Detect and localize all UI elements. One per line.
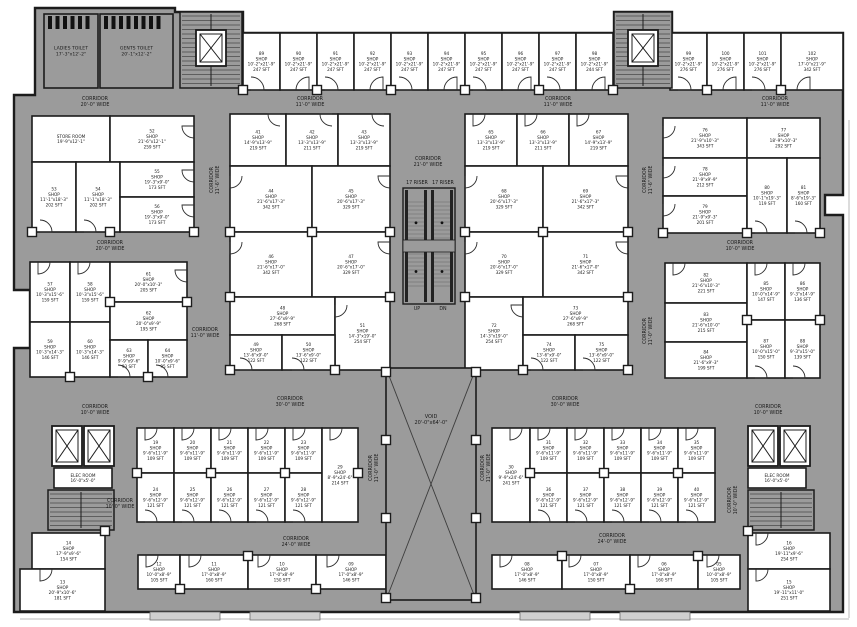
column <box>226 228 235 237</box>
room-97: 97SHOP10'-2"x21'-9"247 SFT <box>539 33 576 90</box>
room-31: 31SHOP9'-6"x11'-9"109 SFT <box>530 428 567 473</box>
corridor-label: CORRIDOR10'-0" WIDE <box>81 404 110 416</box>
room-75: 75SHOP13'-6"x9'-0"122 SFT <box>575 335 628 370</box>
room-86: 86SHOP9'-3"x14'-9"136 SFT <box>785 263 820 320</box>
room-79: 79SHOP21'-9"x9'-3"201 SFT <box>663 196 747 233</box>
room-77: 77SHOP18'-9"x10'-3"292 SFT <box>747 118 820 158</box>
lift <box>748 426 778 466</box>
room-35: 35SHOP9'-6"x11'-9"109 SFT <box>678 428 715 473</box>
column <box>144 373 153 382</box>
corridor-label: DN <box>439 306 447 312</box>
room-label: STORE ROOM19'-9"x12'-1" <box>57 134 86 144</box>
room-95: 95SHOP10'-2"x21'-9"247 SFT <box>465 33 502 90</box>
room-89: 89SHOP10'-2"x21'-9"247 SFT <box>243 33 280 90</box>
column <box>816 316 825 325</box>
room-69: 69SHOP21'-6"x17'-3"342 SFT <box>543 166 628 232</box>
room-15: 15SHOP19'-11"x11'-0"251 SFT <box>748 569 830 611</box>
column <box>777 86 786 95</box>
room-44: 44SHOP21'-6"x17'-3"342 SFT <box>230 166 312 232</box>
escalator <box>403 188 455 304</box>
room-label: ELEC ROOM16'-0"x5'-0" <box>765 473 790 483</box>
column <box>207 469 216 478</box>
room-73: 73SHOP27'-6"x9'-9"268 SFT <box>523 297 628 335</box>
floor-plan-page: LADIES TOILET17'-3"x12'-2"GENTS TOILET20… <box>0 0 857 627</box>
column <box>382 436 391 445</box>
room-28: 28SHOP9'-6"x12'-9"121 SFT <box>285 473 322 522</box>
room-94: 94SHOP10'-2"x21'-9"247 SFT <box>428 33 465 90</box>
room-25: 25SHOP9'-6"x12'-9"121 SFT <box>174 473 211 522</box>
corridor-label: CORRIDOR30'-0" WIDE <box>276 396 305 408</box>
room-37: 37SHOP9'-6"x12'-9"121 SFT <box>567 473 604 522</box>
corridor-label: CORRIDOR20'-0" WIDE <box>81 96 110 108</box>
room-80: 80SHOP10'-1"x19'-3"119 SFT <box>747 158 787 233</box>
corridor-label: CORRIDOR11'-0" WIDE <box>296 96 325 108</box>
entry-step <box>250 612 320 620</box>
room-74: 74SHOP13'-6"x9'-0"122 SFT <box>523 335 575 370</box>
room-68: 68SHOP20'-6"x17'-3"329 SFT <box>465 166 543 232</box>
entry-step <box>620 612 690 620</box>
room-91: 91SHOP10'-2"x21'-9"247 SFT <box>317 33 354 90</box>
lift <box>84 426 114 466</box>
room-36: 36SHOP9'-6"x12'-9"121 SFT <box>530 473 567 522</box>
corridor-label: CORRIDOR11'-0" WIDE <box>368 454 380 483</box>
column <box>354 469 363 478</box>
column <box>694 552 703 561</box>
column <box>600 469 609 478</box>
column <box>472 368 481 377</box>
column <box>386 228 395 237</box>
room-label: ELEC ROOM16'-0"x5'-0" <box>71 473 96 483</box>
void: VOID20'-0"x64'-0" <box>386 368 476 600</box>
column <box>526 469 535 478</box>
room-32: 32SHOP9'-6"x11'-9"109 SFT <box>567 428 604 473</box>
corridor-label: CORRIDOR10'-0" WIDE <box>726 240 755 252</box>
room-76: 76SHOP21'-9"x10'-3"343 SFT <box>663 118 747 158</box>
corridor-label: CORRIDOR10'-0" WIDE <box>106 498 135 510</box>
room-42: 42SHOP13'-3"x13'-9"211 SFT <box>286 114 338 166</box>
room-93: 93SHOP10'-2"x21'-9"247 SFT <box>391 33 428 90</box>
room-59: 59SHOP10'-3"x14'-3"146 SFT <box>30 322 70 377</box>
room-50: 50SHOP13'-6"x9'-0"122 SFT <box>282 335 335 370</box>
floor-plan-canvas: LADIES TOILET17'-3"x12'-2"GENTS TOILET20… <box>0 0 857 627</box>
column <box>624 228 633 237</box>
room-34: 34SHOP9'-6"x11'-9"109 SFT <box>641 428 678 473</box>
corridor-label: CORRIDOR11'-6" WIDE <box>209 166 221 195</box>
column <box>703 86 712 95</box>
room-71: 71SHOP21'-6"x17'-0"342 SFT <box>543 232 628 297</box>
column <box>626 585 635 594</box>
room-84: 84SHOP21'-6"x9'-3"199 SFT <box>665 342 747 378</box>
column <box>472 594 481 603</box>
lift <box>52 426 82 466</box>
room-81: 81SHOP8'-6"x19'-3"160 SFT <box>787 158 820 233</box>
room-64: 64SHOP10'-0"x9'-6"95 SFT <box>148 340 187 377</box>
room-33: 33SHOP9'-6"x11'-9"109 SFT <box>604 428 641 473</box>
room-83: 83SHOP21'-6"x10'-0"215 SFT <box>665 303 747 342</box>
room-52: 52SHOP21'-6"x12'-1"259 SFT <box>110 116 194 162</box>
room-82: 82SHOP21'-6"x10'-3"221 SFT <box>665 263 747 303</box>
column <box>66 373 75 382</box>
column <box>226 293 235 302</box>
room-store-room: STORE ROOM19'-9"x12'-1" <box>32 116 110 162</box>
room-elec-room: ELEC ROOM16'-0"x5'-0" <box>54 468 112 488</box>
room-48: 48SHOP27'-6"x9'-9"268 SFT <box>230 297 335 335</box>
corridor-label: UP <box>414 306 421 312</box>
column <box>624 366 633 375</box>
column <box>226 366 235 375</box>
room-label: GENTS TOILET20'-1"x12'-2" <box>120 46 153 58</box>
corridor-label: CORRIDOR11'-0" WIDE <box>761 96 790 108</box>
column <box>743 316 752 325</box>
column <box>244 552 253 561</box>
room-06: 06SHOP17'-0"x8'-9"160 SFT <box>630 555 698 589</box>
room-58: 58SHOP10'-3"x15'-6"159 SFT <box>70 262 110 322</box>
room-14: 14SHOP17'-9"x9'-6"154 SFT <box>32 533 105 569</box>
staircase <box>48 490 114 530</box>
column <box>28 228 37 237</box>
corridor-label: CORRIDOR10'-0" WIDE <box>727 486 739 515</box>
room-101: 101SHOP10'-2"x21'-9"276 SFT <box>744 33 781 90</box>
corridor-label: CORRIDOR11'-0" WIDE <box>191 327 220 339</box>
room-29: 29SHOP8'-9"x24'-6"214 SFT <box>322 428 358 522</box>
room-label: LADIES TOILET17'-3"x12'-2" <box>54 46 88 58</box>
room-46: 46SHOP21'-6"x17'-0"342 SFT <box>230 232 312 297</box>
room-12: 12SHOP10'-0"x8'-9"105 SFT <box>138 555 180 589</box>
column <box>133 469 142 478</box>
lift <box>628 30 658 66</box>
column <box>558 552 567 561</box>
lift <box>196 30 226 66</box>
column <box>461 228 470 237</box>
room-19: 19SHOP9'-6"x11'-9"109 SFT <box>137 428 174 473</box>
corridor-label: CORRIDOR11'-0" WIDE <box>642 317 654 346</box>
column <box>176 585 185 594</box>
column <box>674 469 683 478</box>
entry-step <box>150 612 220 620</box>
entry-step <box>520 612 590 620</box>
room-98: 98SHOP10'-2"x21'-9"244 SFT <box>576 33 613 90</box>
staircase <box>748 490 814 530</box>
column <box>106 298 115 307</box>
column <box>387 86 396 95</box>
room-88: 88SHOP9'-3"x15'-0"139 SFT <box>785 320 820 378</box>
room-41: 41SHOP14'-9"x13'-9"219 SFT <box>230 114 286 166</box>
column <box>609 86 618 95</box>
room-53: 53SHOP11'-1"x18'-3"202 SFT <box>32 162 76 232</box>
room-99: 99SHOP10'-2"x21'-9"276 SFT <box>670 33 707 90</box>
corridor-label: CORRIDOR11'-6" WIDE <box>642 166 654 195</box>
room-26: 26SHOP9'-6"x12'-9"121 SFT <box>211 473 248 522</box>
room-96: 96SHOP10'-2"x21'-9"247 SFT <box>502 33 539 90</box>
room-27: 27SHOP9'-6"x12'-9"121 SFT <box>248 473 285 522</box>
room-23: 23SHOP9'-6"x11'-9"109 SFT <box>285 428 322 473</box>
room-57: 57SHOP10'-3"x15'-6"159 SFT <box>30 262 70 322</box>
room-56: 56SHOP19'-3"x9'-0"173 SFT <box>120 197 194 232</box>
room-60: 60SHOP10'-3"x14'-3"146 SFT <box>70 322 110 377</box>
column <box>472 514 481 523</box>
room-11: 11SHOP17'-0"x8'-9"160 SFT <box>180 555 248 589</box>
column <box>535 86 544 95</box>
column <box>281 469 290 478</box>
room-55: 55SHOP19'-3"x9'-0"173 SFT <box>120 162 194 197</box>
room-38: 38SHOP9'-6"x12'-9"121 SFT <box>604 473 641 522</box>
column <box>312 585 321 594</box>
column <box>101 527 110 536</box>
room-70: 70SHOP20'-6"x17'-0"329 SFT <box>465 232 543 297</box>
room-61: 61SHOP20'-0"x10'-3"205 SFT <box>110 262 187 302</box>
column <box>183 298 192 307</box>
room-62: 62SHOP20'-0"x9'-9"195 SFT <box>110 302 187 340</box>
room-21: 21SHOP9'-6"x11'-9"109 SFT <box>211 428 248 473</box>
room-elec-room: ELEC ROOM16'-0"x5'-0" <box>748 468 806 488</box>
column <box>382 368 391 377</box>
room-07: 07SHOP17'-0"x8'-9"150 SFT <box>562 555 630 589</box>
corridor-label: CORRIDOR11'-0" WIDE <box>480 454 492 483</box>
column <box>461 293 470 302</box>
room-20: 20SHOP9'-6"x11'-9"109 SFT <box>174 428 211 473</box>
room-90: 90SHOP10'-2"x21'-9"247 SFT <box>280 33 317 90</box>
column <box>659 229 668 238</box>
corridor-label: CORRIDOR20'-0" WIDE <box>96 240 125 252</box>
room-30: 30SHOP9'-9"x24'-6"241 SFT <box>492 428 530 522</box>
column <box>744 527 753 536</box>
room-72: 72SHOP14'-3"x19'-0"254 SFT <box>465 297 523 370</box>
column <box>386 293 395 302</box>
column <box>472 436 481 445</box>
room-100: 100SHOP10'-2"x21'-9"276 SFT <box>707 33 744 90</box>
corridor-label: CORRIDOR24'-0" WIDE <box>282 536 311 548</box>
room-54: 54SHOP11'-1"x18'-3"202 SFT <box>76 162 120 232</box>
corridor-label: 17 RISER <box>432 180 454 186</box>
column <box>461 86 470 95</box>
room-39: 39SHOP9'-6"x12'-9"121 SFT <box>641 473 678 522</box>
room-05: 05SHOP10'-0"x8'-9"105 SFT <box>698 555 740 589</box>
room-16: 16SHOP19'-11"x9'-6"254 SFT <box>748 533 830 569</box>
room-09: 09SHOP17'-0"x8'-9"146 SFT <box>316 555 386 589</box>
column <box>624 293 633 302</box>
corridor-label: 17 RISER <box>406 180 428 186</box>
corridor-label: CORRIDOR21'-0" WIDE <box>414 156 443 168</box>
room-102: 102SHOP17'-0"x21'-9"342 SFT <box>781 33 843 90</box>
room-87: 87SHOP10'-0"x15'-0"150 SFT <box>747 320 785 378</box>
column <box>382 514 391 523</box>
column <box>106 228 115 237</box>
room-08: 08SHOP17'-0"x8'-9"146 SFT <box>492 555 562 589</box>
room-40: 40SHOP9'-6"x12'-9"121 SFT <box>678 473 715 522</box>
room-78: 78SHOP21'-9"x9'-9"212 SFT <box>663 158 747 196</box>
room-43: 43SHOP13'-3"x13'-9"219 SFT <box>338 114 390 166</box>
lift <box>780 426 810 466</box>
column <box>382 594 391 603</box>
corridor-label: CORRIDOR10'-0" WIDE <box>754 404 783 416</box>
column <box>190 228 199 237</box>
column <box>308 228 317 237</box>
room-24: 24SHOP9'-6"x12'-9"121 SFT <box>137 473 174 522</box>
column <box>313 86 322 95</box>
column <box>239 86 248 95</box>
room-13: 13SHOP20'-9"x10'-6"181 SFT <box>20 569 105 611</box>
room-22: 22SHOP9'-6"x11'-9"109 SFT <box>248 428 285 473</box>
column <box>743 229 752 238</box>
corridor-label: CORRIDOR24'-0" WIDE <box>598 533 627 545</box>
room-85: 85SHOP10'-0"x14'-9"147 SFT <box>747 263 785 320</box>
column <box>519 366 528 375</box>
column <box>816 229 825 238</box>
column <box>331 366 340 375</box>
room-51: 51SHOP14'-3"x19'-0"254 SFT <box>335 297 390 370</box>
corridor-label: CORRIDOR30'-0" WIDE <box>551 396 580 408</box>
room-49: 49SHOP13'-6"x9'-0"122 SFT <box>230 335 282 370</box>
corridor-label: CORRIDOR11'-0" WIDE <box>544 96 573 108</box>
room-67: 67SHOP14'-9"x13'-9"219 SFT <box>569 114 628 166</box>
column <box>539 228 548 237</box>
room-92: 92SHOP10'-2"x21'-9"247 SFT <box>354 33 391 90</box>
